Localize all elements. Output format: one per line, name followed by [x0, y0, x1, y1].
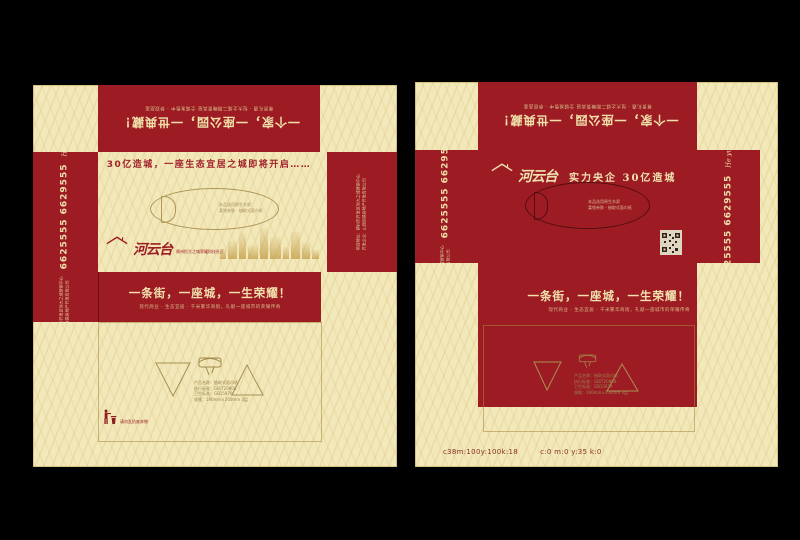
tissue-opening-dieline: 本品选用原生木浆 柔韧亲肤 · 抽取式面巾纸	[525, 182, 650, 229]
triangle-up-outline	[604, 361, 641, 394]
right-side-flap: 项目地址：朔州市开发区恒大之城营销中心 开发企业：山西恒昌房地产开发有限公司	[327, 152, 397, 272]
right-side-flap: 6625555 6629555 He yun tai	[697, 150, 760, 263]
triangle-down-outline	[153, 359, 193, 399]
cmyk-spec-red: c38m:100y:100k:18	[443, 448, 518, 456]
brand-script: He yun tai	[725, 150, 733, 167]
street-slogan: 一条街，一座城，一生荣耀！	[129, 285, 292, 301]
vertical-contact-text: 项目地址：朔州市开发区恒大之城营销中心 开发企业：山西恒昌房地产开发有限公司 6…	[60, 152, 71, 322]
phone-number: 6625555 6629555	[61, 163, 71, 269]
skyline-building	[228, 241, 237, 259]
brand-script: He yun tai	[62, 152, 70, 156]
street-slogan: 一条街，一座城，一生荣耀！	[518, 288, 690, 304]
qr-code	[660, 230, 682, 255]
certification-emblem	[196, 354, 224, 378]
address-lines: 项目地址：朔州市开发区恒大之城营销中心 开发企业：山西恒昌房地产开发有限公司	[60, 276, 71, 322]
left-bottom-face: 产品名称：抽取式面巾纸 执行标准：GB/T20808 卫生标准：GB15979 …	[98, 322, 322, 442]
right-top-slogan-band: 一个家，一座公园，一世典藏！ 尊贵礼遇 · 恒大之城二期瞰景高层 全城发售中 ·…	[478, 82, 697, 150]
skyline-building	[270, 237, 281, 259]
address-line: 开发企业：山西恒昌房地产开发有限公司	[363, 174, 368, 250]
oval-note-line: 柔韧亲肤 · 抽取式面巾纸	[219, 208, 263, 214]
phone-number: 6625555 6629555	[724, 174, 734, 263]
left-side-flap: 项目地址：朔州市开发区恒大之城营销中心 开发企业：山西恒昌房地产开发有限公司 6…	[33, 152, 98, 322]
brand-logo-text: 河云台	[133, 243, 172, 257]
skyline-building	[283, 247, 289, 259]
vertical-contact-text: 项目地址：朔州市开发区恒大之城营销中心 开发企业：山西恒昌房地产开发有限公司 6…	[441, 150, 452, 263]
roof-icon	[105, 235, 129, 245]
left-street-band: 一条街，一座城，一生荣耀！ 现代商业 · 生态宜居 · 千米繁华商街，礼献一座城…	[98, 272, 321, 322]
skyline-building	[302, 242, 310, 259]
address-lines: 项目地址：朔州市开发区恒大之城营销中心 开发企业：山西恒昌房地产开发有限公司	[441, 246, 452, 263]
upside-down-text-block: 一个家，一座公园，一世典藏！ 尊贵礼遇 · 恒大之城二期瞰景高层 全城发售中 ·…	[478, 82, 697, 150]
vertical-contact-text: 6625555 6629555 He yun tai	[724, 150, 734, 263]
right-bottom-face: 产品名称：抽取式面巾纸 执行标准：GB/T20808 卫生标准：GB15979 …	[483, 325, 695, 432]
oval-note: 本品选用原生木浆 柔韧亲肤 · 抽取式面巾纸	[588, 199, 632, 211]
slogan-title: 一个家，一座公园，一世典藏！	[118, 115, 300, 132]
upside-down-text-block: 一个家，一座公园，一世典藏！ 尊贵礼遇 · 恒大之城二期瞰景高层 全城发售中 ·…	[98, 85, 320, 152]
keep-clean-trash-icon	[102, 405, 118, 429]
slogan-title: 一个家，一座公园，一世典藏！	[497, 112, 679, 129]
skyline-building	[239, 233, 246, 259]
brand-logo-text: 河云台	[518, 170, 557, 184]
brand-logo-subtext: 朔州恒大之城荣耀科技社区	[176, 249, 224, 257]
brand-logo-block: 河云台 实力央企 30亿造城	[490, 162, 676, 184]
left-side-flap: 项目地址：朔州市开发区恒大之城营销中心 开发企业：山西恒昌房地产开发有限公司 6…	[415, 150, 478, 263]
cmyk-spec-row: c38m:100y:100k:18 c:0 m:0 y:35 k:0	[443, 448, 602, 456]
roof-icon	[490, 162, 514, 172]
city-skyline-graphic	[220, 225, 324, 259]
oval-note: 本品选用原生木浆 柔韧亲肤 · 抽取式面巾纸	[219, 202, 263, 214]
brand-logo-block: 河云台 朔州恒大之城荣耀科技社区	[105, 235, 224, 257]
product-info-line: 规格：190mm×200mm 3层	[194, 398, 248, 403]
skyline-building	[312, 250, 319, 259]
street-slogan-block: 一条街，一座城，一生荣耀！ 现代商业 · 生态宜居 · 千米繁华商街，礼献一座城…	[518, 288, 690, 313]
triangle-down-outline	[531, 359, 564, 393]
phone-number: 6625555 6629555	[442, 150, 452, 239]
left-headline: 30亿造城，一座生态宜居之城即将开启……	[98, 157, 320, 170]
vertical-address-text: 项目地址：朔州市开发区恒大之城营销中心 开发企业：山西恒昌房地产开发有限公司	[357, 174, 368, 250]
triangle-up-outline	[229, 362, 266, 398]
street-slogan-subtitle: 现代商业 · 生态宜居 · 千米繁华商街，礼献一座城市的荣耀传奇	[139, 304, 281, 310]
address-lines: 项目地址：朔州市开发区恒大之城营销中心 开发企业：山西恒昌房地产开发有限公司	[357, 174, 368, 250]
skyline-building	[291, 232, 300, 259]
dieline-panel-left: 一个家，一座公园，一世典藏！ 尊贵礼遇 · 恒大之城二期瞰景高层 全城发售中 ·…	[33, 85, 397, 467]
left-top-slogan-band: 一个家，一座公园，一世典藏！ 尊贵礼遇 · 恒大之城二期瞰景高层 全城发售中 ·…	[98, 85, 320, 152]
skyline-building	[248, 245, 258, 259]
slogan-small-line: 尊贵礼遇 · 恒大之城二期瞰景高层 全城发售中 · 恭迎品鉴	[523, 103, 652, 109]
certification-emblem	[576, 352, 599, 370]
oval-note-line: 柔韧亲肤 · 抽取式面巾纸	[588, 205, 632, 211]
street-slogan-subtitle: 现代商业 · 生态宜居 · 千米繁华商街，礼献一座城市的荣耀传奇	[518, 307, 690, 313]
opening-tab-dieline	[534, 192, 548, 220]
slogan-small-line: 尊贵礼遇 · 恒大之城二期瞰景高层 全城发售中 · 恭迎品鉴	[145, 106, 274, 112]
address-line: 开发企业：山西恒昌房地产开发有限公司	[66, 276, 71, 322]
opening-tab-dieline	[161, 196, 176, 223]
address-line: 开发企业：山西恒昌房地产开发有限公司	[447, 246, 452, 263]
tissue-opening-dieline: 本品选用原生木浆 柔韧亲肤 · 抽取式面巾纸	[150, 188, 279, 230]
cmyk-spec-cream: c:0 m:0 y:35 k:0	[540, 448, 602, 456]
skyline-building	[220, 249, 226, 259]
design-canvas: 一个家，一座公园，一世典藏！ 尊贵礼遇 · 恒大之城二期瞰景高层 全城发售中 ·…	[0, 0, 800, 540]
keep-clean-note: 请勿乱扔废弃物	[120, 419, 148, 425]
dieline-panel-right: 一个家，一座公园，一世典藏！ 尊贵礼遇 · 恒大之城二期瞰景高层 全城发售中 ·…	[415, 82, 778, 467]
skyline-building	[260, 228, 268, 259]
